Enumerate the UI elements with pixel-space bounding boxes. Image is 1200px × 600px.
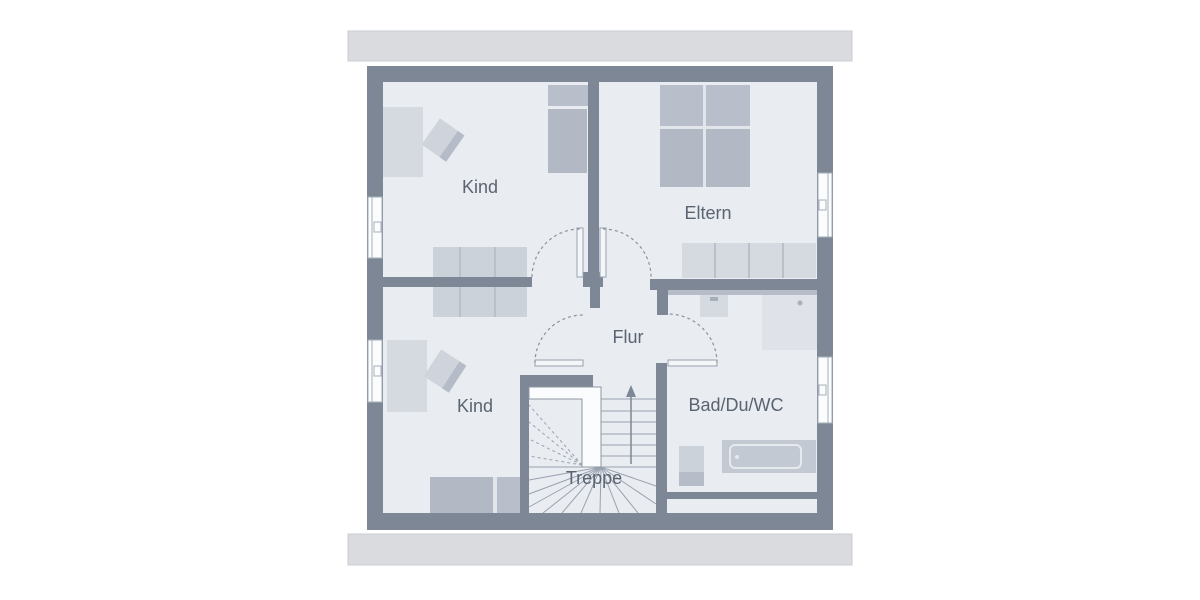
roof-overhang-bottom xyxy=(348,534,852,565)
bed-pillow-kind-upper xyxy=(548,85,588,106)
wall-stair-west xyxy=(520,375,529,513)
wall-kind-eltern xyxy=(588,82,599,272)
door-leaf-kind-upper xyxy=(577,228,583,277)
room-label-kind-upper: Kind xyxy=(462,177,498,197)
wall-stair-east xyxy=(656,363,667,513)
wardrobe-kind-lower xyxy=(433,287,527,317)
door-leaf-bad xyxy=(668,360,717,366)
window-left-lower xyxy=(368,340,382,402)
shower xyxy=(762,295,817,350)
roof-overhang-top xyxy=(348,31,852,61)
outer-wall-right xyxy=(817,66,833,530)
bed-kind-lower xyxy=(430,477,520,513)
wall-eltern-bad xyxy=(650,279,817,290)
outer-wall-top xyxy=(367,66,833,82)
wall-door-post-bad xyxy=(657,290,668,315)
wall-stair-north xyxy=(520,375,593,387)
floor-plan-drawing: Kind Eltern Flur Kind Bad/Du/WC Treppe xyxy=(0,0,1200,600)
wall-ledge-bad xyxy=(668,290,817,295)
door-leaf-eltern xyxy=(600,228,606,277)
wall-bad-south xyxy=(667,492,817,499)
toilet xyxy=(679,446,704,486)
wardrobe-kind-upper xyxy=(433,247,527,277)
room-label-treppe: Treppe xyxy=(566,468,622,488)
bathtub xyxy=(722,440,816,473)
window-right-lower xyxy=(818,357,832,423)
wall-kind-kind xyxy=(383,277,532,287)
dresser-eltern xyxy=(682,243,816,278)
outer-wall-left xyxy=(367,66,383,530)
room-label-kind-lower: Kind xyxy=(457,396,493,416)
desk-kind-lower xyxy=(387,340,427,412)
floor-plan-canvas: Kind Eltern Flur Kind Bad/Du/WC Treppe xyxy=(0,0,1200,600)
double-bed-eltern xyxy=(660,85,750,187)
bed-kind-upper xyxy=(548,109,587,173)
outer-wall-bottom xyxy=(367,513,833,530)
washbasin xyxy=(700,295,728,317)
room-label-flur: Flur xyxy=(613,327,644,347)
wall-stub-flur xyxy=(590,287,600,308)
room-label-eltern: Eltern xyxy=(684,203,731,223)
room-label-bad: Bad/Du/WC xyxy=(688,395,783,415)
desk-kind-upper xyxy=(383,107,423,177)
door-leaf-kind-lower xyxy=(535,360,583,366)
window-left-upper xyxy=(368,197,382,258)
window-right-upper xyxy=(818,173,832,237)
